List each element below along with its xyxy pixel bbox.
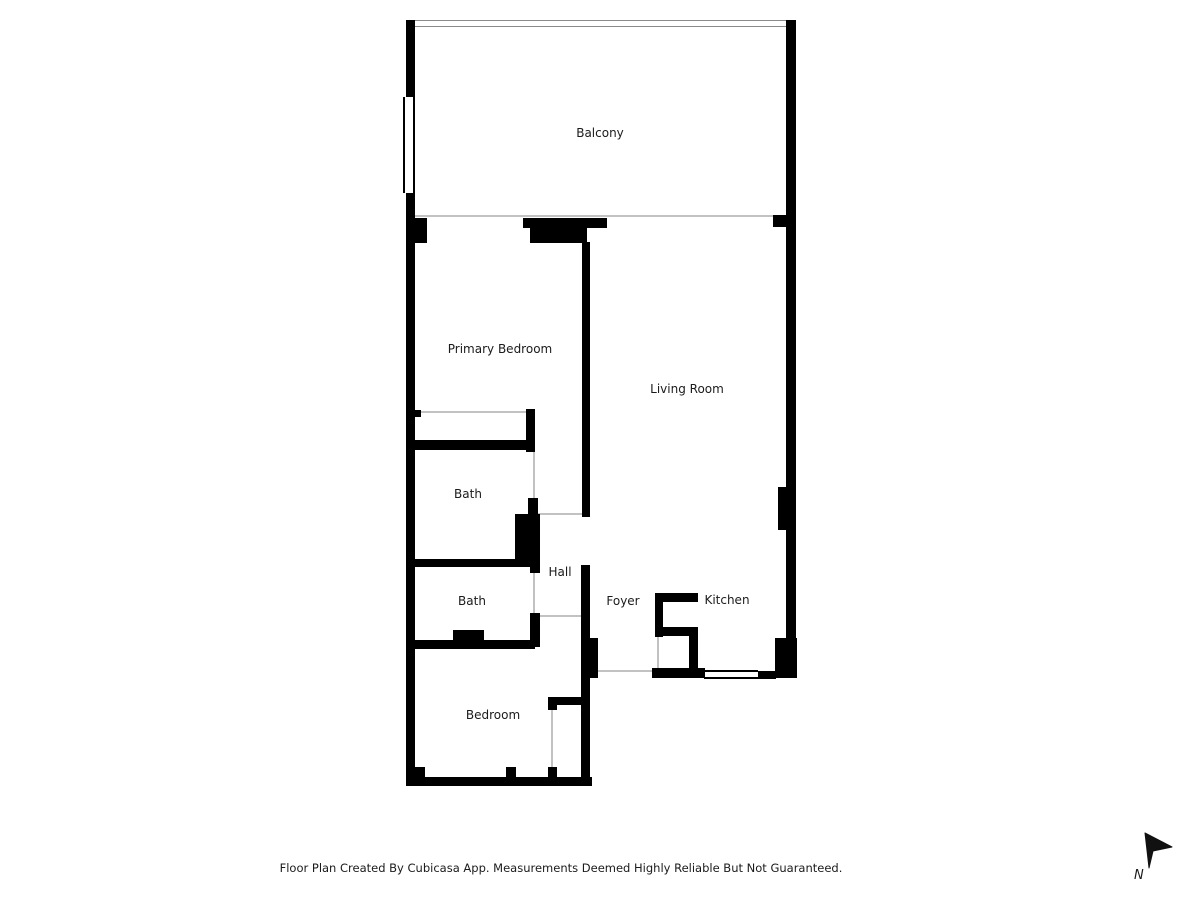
wall-living-room-pilaster <box>778 487 786 530</box>
wall-exterior-right <box>786 20 796 678</box>
wall-exterior-left <box>406 218 415 786</box>
room-label-bath-1: Bath <box>454 487 482 501</box>
north-label: N <box>1134 868 1144 883</box>
wall-balcony-left-upper <box>406 20 415 97</box>
opening-entry-door <box>598 670 652 672</box>
wall-kitchen-counter-right <box>689 627 698 677</box>
north-arrow: N <box>1128 824 1178 886</box>
floor-plan-canvas: Floor Plan Created By Cubicasa App. Meas… <box>0 0 1200 900</box>
room-label-kitchen: Kitchen <box>704 593 749 607</box>
opening-kitchen-closet-door <box>657 637 659 668</box>
room-label-bath-2: Bath <box>458 594 486 608</box>
opening-hall-door-top <box>538 513 582 515</box>
wall-bedroom-window-stub <box>506 767 516 778</box>
wall-bedroom-closet-stub-bottom <box>548 767 557 777</box>
balcony-window-left <box>403 97 415 193</box>
wall-balcony-door-block <box>530 228 587 243</box>
room-label-living-room: Living Room <box>650 382 724 396</box>
wall-primary-living-divider <box>582 242 590 517</box>
wall-balcony-stub-right <box>773 215 786 227</box>
wall-foyer-block <box>581 638 598 678</box>
wall-corner-block-bottom-right <box>775 638 797 678</box>
wall-hall-block <box>515 514 540 565</box>
room-label-bedroom: Bedroom <box>466 708 520 722</box>
wall-primary-closet-bottom <box>406 440 535 450</box>
wall-kitchen-bottom-right <box>758 671 776 679</box>
wall-bath2-stub-top <box>530 565 540 573</box>
wall-balcony-stub-left <box>408 218 427 243</box>
wall-bedroom-closet-stub-top <box>548 697 557 710</box>
opening-primary-closet-slider <box>420 411 526 413</box>
wall-bedroom-corner-block <box>406 767 425 786</box>
wall-balcony-door-bar <box>523 218 607 228</box>
room-label-primary-bedroom: Primary Bedroom <box>448 342 552 356</box>
opening-bath2-door <box>533 573 535 613</box>
opening-hall-door-bottom <box>538 615 582 617</box>
balcony-railing <box>406 20 796 27</box>
opening-bath1-door <box>533 452 535 498</box>
wall-bath-divider <box>406 559 538 567</box>
room-label-balcony: Balcony <box>576 126 624 140</box>
opening-balcony-slider-line <box>415 215 786 217</box>
wall-primary-closet-stub <box>415 410 421 417</box>
wall-hall-right <box>581 565 590 640</box>
wall-balcony-left-lower <box>406 193 415 218</box>
wall-bedroom-right <box>581 675 590 786</box>
wall-bath1-right-lower <box>528 498 538 515</box>
wall-bedroom-bottom <box>406 777 592 786</box>
opening-bedroom-closet-door <box>551 710 553 767</box>
room-label-hall: Hall <box>548 565 571 579</box>
north-arrow-icon <box>1128 824 1178 874</box>
footer-disclaimer: Floor Plan Created By Cubicasa App. Meas… <box>280 861 843 875</box>
wall-bath2-fixture <box>453 630 484 642</box>
room-label-foyer: Foyer <box>606 594 639 608</box>
kitchen-window <box>704 670 758 679</box>
